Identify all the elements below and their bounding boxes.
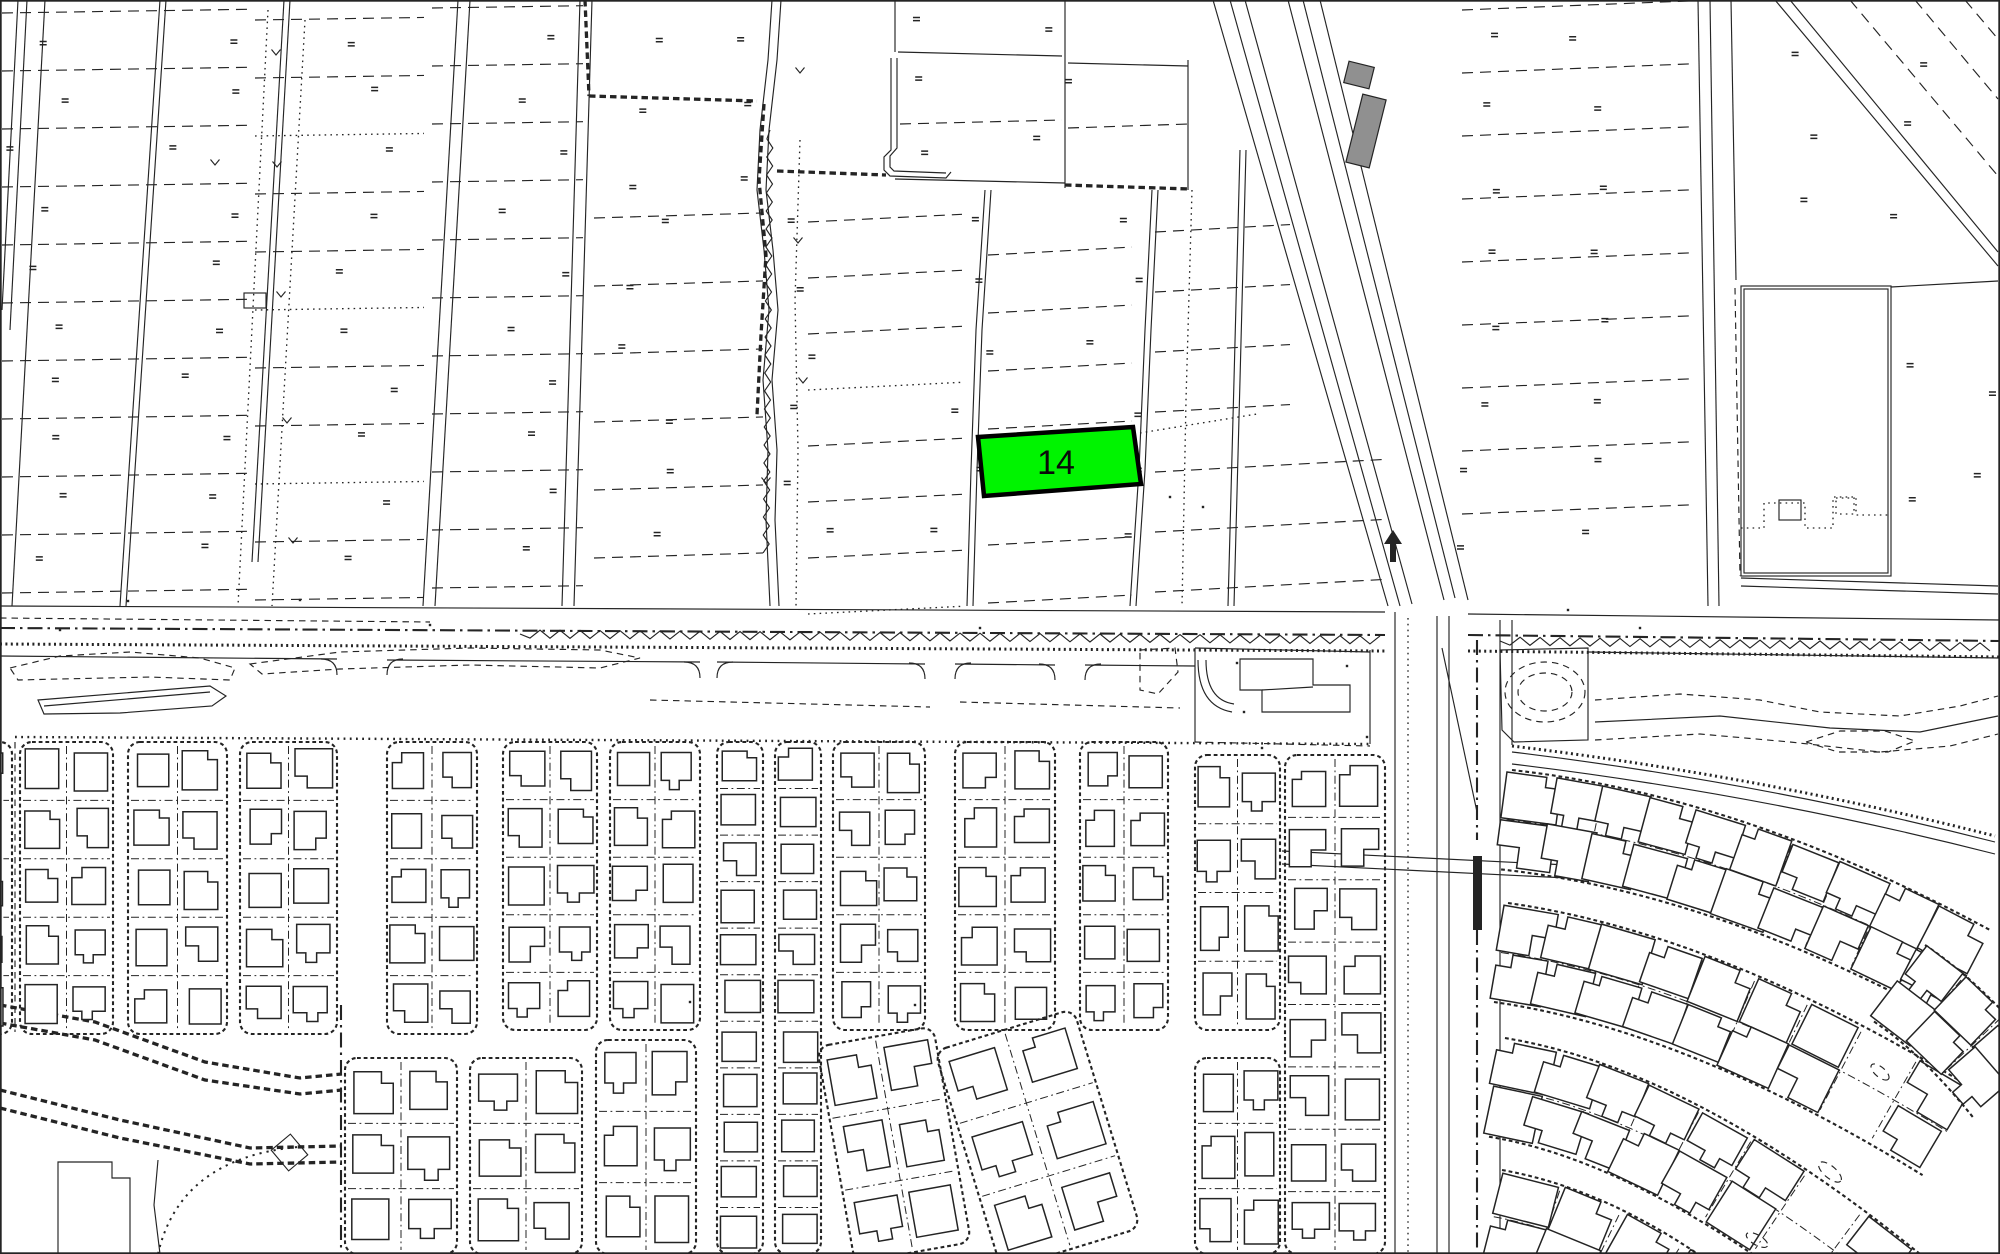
grassland-icon [915,77,922,80]
grassland-icon [1491,33,1498,36]
grassland-icon [913,17,920,20]
grassland-icon [508,327,515,330]
residential-blocks-layer [0,742,2000,1254]
highlighted-parcel-group: 14 [978,427,1141,496]
grassland-icon [827,529,834,532]
ditch-chevron-icon [211,160,220,166]
grassland-icon [1125,534,1132,537]
grassland-icon [1086,341,1093,344]
grassland-icon [972,218,979,221]
grassland-icon [169,146,176,149]
grassland-icon [383,501,390,504]
grassland-icon [62,99,69,102]
grassland-icon [523,547,530,550]
grassland-icon [1792,52,1799,55]
grassland-icon [784,481,791,484]
grassland-icon [1600,186,1607,189]
grassland-icon [808,355,815,358]
grassland-icon [662,219,669,222]
cadastral-map: 14 [0,0,2000,1254]
grassland-icon [1134,413,1141,416]
grassland-icon [626,285,633,288]
grassland-icon [358,433,365,436]
grassland-icon [550,489,557,492]
grassland-icon [519,99,526,102]
grassland-icon [230,40,237,43]
grassland-icon [986,351,993,354]
grassland-icon [1974,474,1981,477]
grassland-icon [1591,250,1598,253]
grassland-icon [656,39,663,42]
grassland-icon [744,102,751,105]
grassland-icon [921,151,928,154]
grassland-icon [1120,219,1127,222]
ditch-chevron-icon [799,378,808,384]
grassland-icon [1920,63,1927,66]
ditch-chevron-icon [794,238,803,244]
grassland-icon [1594,107,1601,110]
grassland-icon [340,329,347,332]
building [1344,61,1375,89]
grassland-icon [547,36,554,39]
grassland-icon [386,148,393,151]
grassland-icon [1569,37,1576,40]
grassland-icon [562,273,569,276]
grassland-icon [1904,122,1911,125]
ditch-chevron-icon [283,418,292,424]
grassland-icon [654,532,661,535]
ditch-chevron-icon [289,538,298,544]
grassland-icon [1594,400,1601,403]
grassland-icon [499,209,506,212]
map-viewport[interactable]: 14 [0,0,2000,1254]
grassland-icon [1493,190,1500,193]
grassland-icon [1492,326,1499,329]
ditch-chevron-icon [277,292,286,298]
grassland-icon [1457,546,1464,549]
grassland-icon [1890,215,1897,218]
grassland-icon [1909,498,1916,501]
grassland-icon [666,420,673,423]
grassland-icon [639,109,646,112]
grassland-icon [549,381,556,384]
grassland-icon [930,528,937,531]
grassland-icon [528,432,535,435]
highlighted-parcel-label: 14 [1037,444,1075,482]
grassland-icon [36,557,43,560]
grassland-icon [348,43,355,46]
ditch-chevron-icon [796,68,805,74]
grassland-icon [213,261,220,264]
grassland-icon [741,177,748,180]
grassland-icon [223,436,230,439]
grassland-icon [951,409,958,412]
grassland-icon [1810,135,1817,138]
grassland-icon [1489,250,1496,253]
grassland-icon [1483,103,1490,106]
grassland-icon [618,345,625,348]
grassland-icon [391,388,398,391]
grassland-icon [201,544,208,547]
grassland-icon [1136,278,1143,281]
grassland-icon [1033,136,1040,139]
grassland-icon [209,495,216,498]
grassland-icon [345,556,352,559]
park-layer [0,1005,342,1254]
grassland-icon [667,469,674,472]
grassland-icon [1045,28,1052,31]
grassland-icon [182,374,189,377]
grassland-icon [232,90,239,93]
grassland-icon [52,436,59,439]
farm-parcels-layer [2,0,1998,614]
grassland-icon [1800,198,1807,201]
grassland-icon [216,329,223,332]
ditch-chevron-icon [272,50,281,56]
grassland-icon [336,270,343,273]
grassland-icon [1460,468,1467,471]
grassland-icon [1907,364,1914,367]
grassland-icon [56,325,63,328]
grassland-icon [52,378,59,381]
grassland-icon [371,87,378,90]
grassland-icon [1582,530,1589,533]
grassland-icon [1065,80,1072,83]
grassland-icon [1594,458,1601,461]
grassland-icon [788,219,795,222]
grassland-icon [790,405,797,408]
grassland-icon [1989,392,1996,395]
grassland-icon [231,214,238,217]
grassland-icon [1481,403,1488,406]
grassland-icon [629,185,636,188]
grassland-icon [1601,319,1608,322]
grassland-icon [797,288,804,291]
grassland-icon [60,494,67,497]
grassland-icon [370,214,377,217]
grassland-icon [737,38,744,41]
grassland-icon [560,151,567,154]
grassland-icon [41,208,48,211]
